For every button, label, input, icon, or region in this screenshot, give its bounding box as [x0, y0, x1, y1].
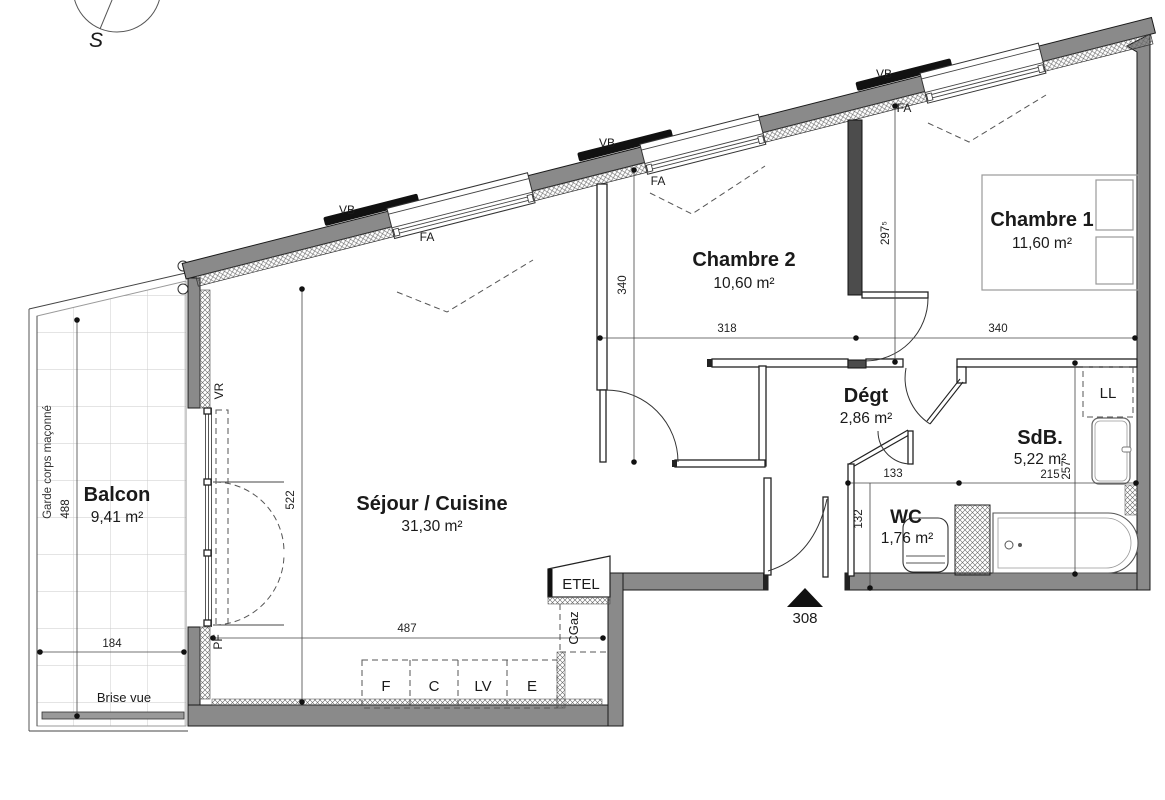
dim-degt-width: 133 [883, 468, 902, 480]
door-swing-chambre1 [865, 298, 928, 361]
fa-swing-chambre1 [928, 95, 1046, 142]
kitchen-item-sink: E [527, 678, 537, 695]
dim-sejour-height: 522 [285, 490, 297, 509]
wall-south-east [845, 573, 1150, 590]
wall-west-upper-insulation [200, 290, 210, 408]
door-swing-sdb [905, 368, 930, 424]
room-area-chambre1: 11,60 m² [1012, 235, 1072, 252]
brise-vue-screen [42, 712, 184, 719]
window-tag-chambre2: FA [651, 174, 666, 188]
kitchen-duct-insulation [557, 652, 565, 708]
apartment-number: 308 [792, 610, 817, 627]
shutter-tag-chambre2: VB [599, 136, 615, 150]
dimension-lines [37, 103, 1139, 719]
floor-plan-canvas: Balcon 9,41 m² Séjour / Cuisine 31,30 m²… [0, 0, 1165, 800]
dim-chambre2-width: 318 [717, 323, 736, 335]
drain-pipe-icon [178, 284, 188, 294]
door-leaf-sejour [600, 390, 606, 462]
dim-balcon-height: 488 [60, 499, 72, 518]
mullion [204, 479, 211, 485]
door-jamb [672, 460, 677, 467]
door-leaf-sdb [927, 379, 963, 424]
shutter-tag-sejour: VB [339, 203, 355, 217]
dim-sdb-height: 257 [1061, 460, 1073, 479]
wall-chambre1-doorjamb [848, 360, 866, 368]
guardrail-label: Garde corps maçonné [42, 405, 54, 519]
wall-chambre2-south [712, 359, 848, 367]
dim-sejour-width: 487 [397, 623, 416, 635]
window-chambre2 [640, 114, 766, 174]
wall-east-pier-insulation [1125, 485, 1137, 515]
french-window-tag: PF [211, 634, 225, 649]
dim-chambre2-height: 340 [617, 275, 629, 294]
room-label-degt: Dégt [844, 385, 889, 407]
mullion [204, 620, 211, 626]
door-swing-wc [878, 431, 911, 464]
french-door-swings [215, 482, 284, 625]
dim-chambre1-width: 340 [988, 323, 1007, 335]
room-area-wc: 1,76 m² [881, 530, 934, 547]
washbasin-faucet-icon [1122, 447, 1131, 452]
bed-chambre1 [982, 175, 1138, 290]
door-jamb [707, 359, 712, 367]
french-door-leaves [213, 482, 284, 625]
dim-sdb-width: 215 [1040, 469, 1059, 481]
wall-wc-sdb-pier [955, 505, 990, 575]
wall-corridor-east [759, 366, 766, 466]
door-leaf-entrance [823, 497, 828, 577]
etel-wall-insulation [548, 597, 610, 604]
wall-west-lower-insulation [200, 627, 210, 699]
wall-entry-degt [764, 478, 771, 575]
wall-south-entry [623, 573, 768, 590]
window-sejour [387, 173, 535, 239]
bathtub-drain-icon [1018, 543, 1022, 547]
compass [73, 0, 161, 32]
kitchen-item-cooker: C [429, 678, 440, 695]
wall-south-sejour-insulation [212, 699, 602, 705]
dim-wc-height: 132 [853, 509, 865, 528]
brise-vue-label: Brise vue [97, 690, 151, 705]
dim-balcon-width: 184 [102, 638, 122, 650]
etel-label: ETEL [562, 576, 600, 593]
mullion [204, 408, 211, 414]
room-label-chambre2: Chambre 2 [692, 249, 795, 271]
door-swing-entrance [768, 499, 827, 571]
mullion [204, 550, 211, 556]
wall-wc-north-slanted [849, 430, 909, 469]
room-label-sejour: Séjour / Cuisine [356, 493, 507, 515]
wall-sejour-chambre2 [597, 184, 607, 390]
roller-shutter-tag: VR [212, 382, 226, 399]
shutter-tag-chambre1: VB [876, 67, 892, 81]
room-label-sdb: SdB. [1017, 427, 1063, 449]
room-area-degt: 2,86 m² [840, 410, 893, 427]
bed-outline [982, 175, 1138, 290]
dim-chambre1-height: 297⁵ [880, 221, 892, 245]
dimension-dots [37, 103, 1139, 719]
room-area-sejour: 31,30 m² [401, 518, 462, 535]
kitchen-item-dishwasher: LV [474, 678, 491, 695]
balcony-glazing [206, 408, 212, 627]
bed-pillow [1096, 237, 1133, 284]
wall-west-upper [188, 278, 200, 408]
entrance-arrow-icon [787, 588, 823, 607]
wall-corridor-south [675, 460, 765, 467]
fa-swing-chambre2 [650, 166, 765, 214]
window-chambre1 [920, 43, 1046, 103]
fa-swing-sejour [397, 260, 533, 312]
compass-needle-icon [100, 0, 117, 29]
floor-plan: Balcon 9,41 m² Séjour / Cuisine 31,30 m²… [0, 0, 1165, 800]
room-area-sdb: 5,22 m² [1014, 451, 1067, 468]
compass-circle [73, 0, 161, 32]
window-tag-sejour: FA [420, 230, 435, 244]
door-leaf-wc [908, 431, 913, 464]
bed-pillow [1096, 180, 1133, 230]
room-label-chambre1: Chambre 1 [990, 209, 1093, 231]
interior-walls [597, 120, 1137, 576]
door-swing-sejour [606, 390, 678, 462]
compass-south-label: S [89, 29, 103, 52]
room-label-wc: WC [890, 507, 922, 528]
kitchen-item-fridge: F [381, 678, 390, 695]
wall-chambre2-chambre1 [848, 120, 862, 295]
room-area-chambre2: 10,60 m² [713, 275, 774, 292]
bathtub [993, 513, 1138, 573]
room-label-balcon: Balcon [84, 484, 151, 506]
roller-shutter-box [216, 410, 228, 625]
cgaz-label: CGaz [566, 611, 581, 644]
room-area-balcon: 9,41 m² [91, 509, 144, 526]
window-tag-chambre1: FA [897, 101, 912, 115]
washing-machine-label: LL [1100, 385, 1117, 402]
wall-sdb-north [957, 359, 1137, 367]
